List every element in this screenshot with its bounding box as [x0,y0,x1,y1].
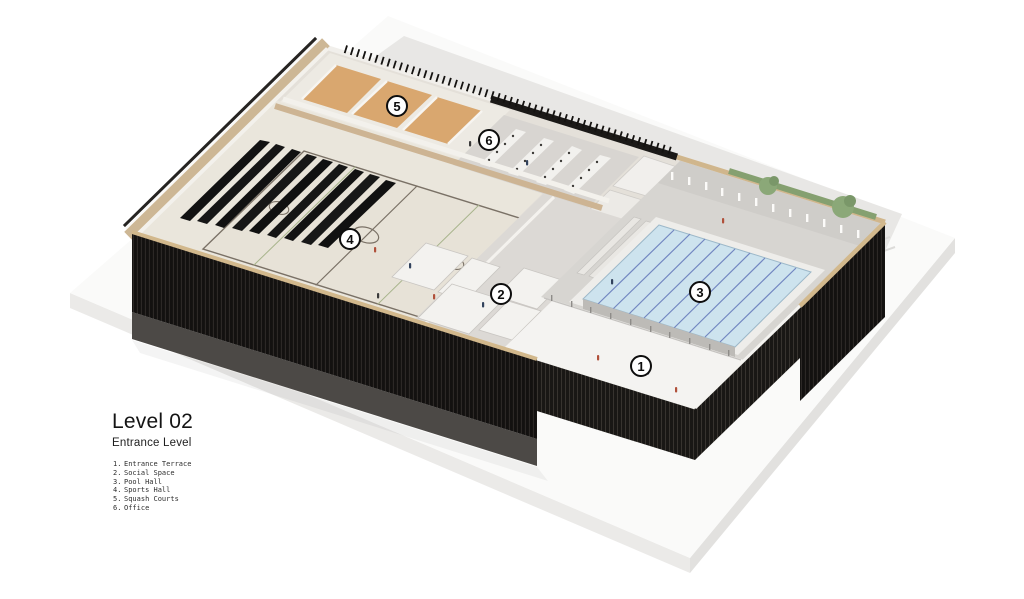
floorplan-rendering: 1 2 3 4 5 6 Level 02 Entrance Level 1.En… [0,0,1024,599]
legend-item-number: 1. [113,460,124,469]
legend-item-number: 4. [113,486,124,495]
page-subtitle: Entrance Level [112,437,193,449]
room-marker-squash-courts: 5 [386,95,408,117]
legend-item-label: Sports Hall [124,486,170,494]
room-marker-social-space: 2 [490,283,512,305]
room-legend: 1.Entrance Terrace 2.Social Space 3.Pool… [113,460,191,513]
legend-item-label: Entrance Terrace [124,460,191,468]
legend-item: 3.Pool Hall [113,478,191,487]
legend-item: 4.Sports Hall [113,486,191,495]
legend-item: 1.Entrance Terrace [113,460,191,469]
legend-item-number: 5. [113,495,124,504]
room-marker-sports-hall: 4 [339,228,361,250]
legend-item: 5.Squash Courts [113,495,191,504]
room-marker-office: 6 [478,129,500,151]
legend-item-number: 3. [113,478,124,487]
room-marker-pool-hall: 3 [689,281,711,303]
legend-item-label: Social Space [124,469,175,477]
page-title: Level 02 [112,410,193,434]
legend-item-label: Squash Courts [124,495,179,503]
legend-item-number: 6. [113,504,124,513]
legend-item-number: 2. [113,469,124,478]
legend-item: 2.Social Space [113,469,191,478]
legend-item-label: Office [124,504,149,512]
legend-item-label: Pool Hall [124,478,162,486]
legend-item: 6.Office [113,504,191,513]
title-block: Level 02 Entrance Level [112,410,193,449]
room-marker-entrance-terrace: 1 [630,355,652,377]
